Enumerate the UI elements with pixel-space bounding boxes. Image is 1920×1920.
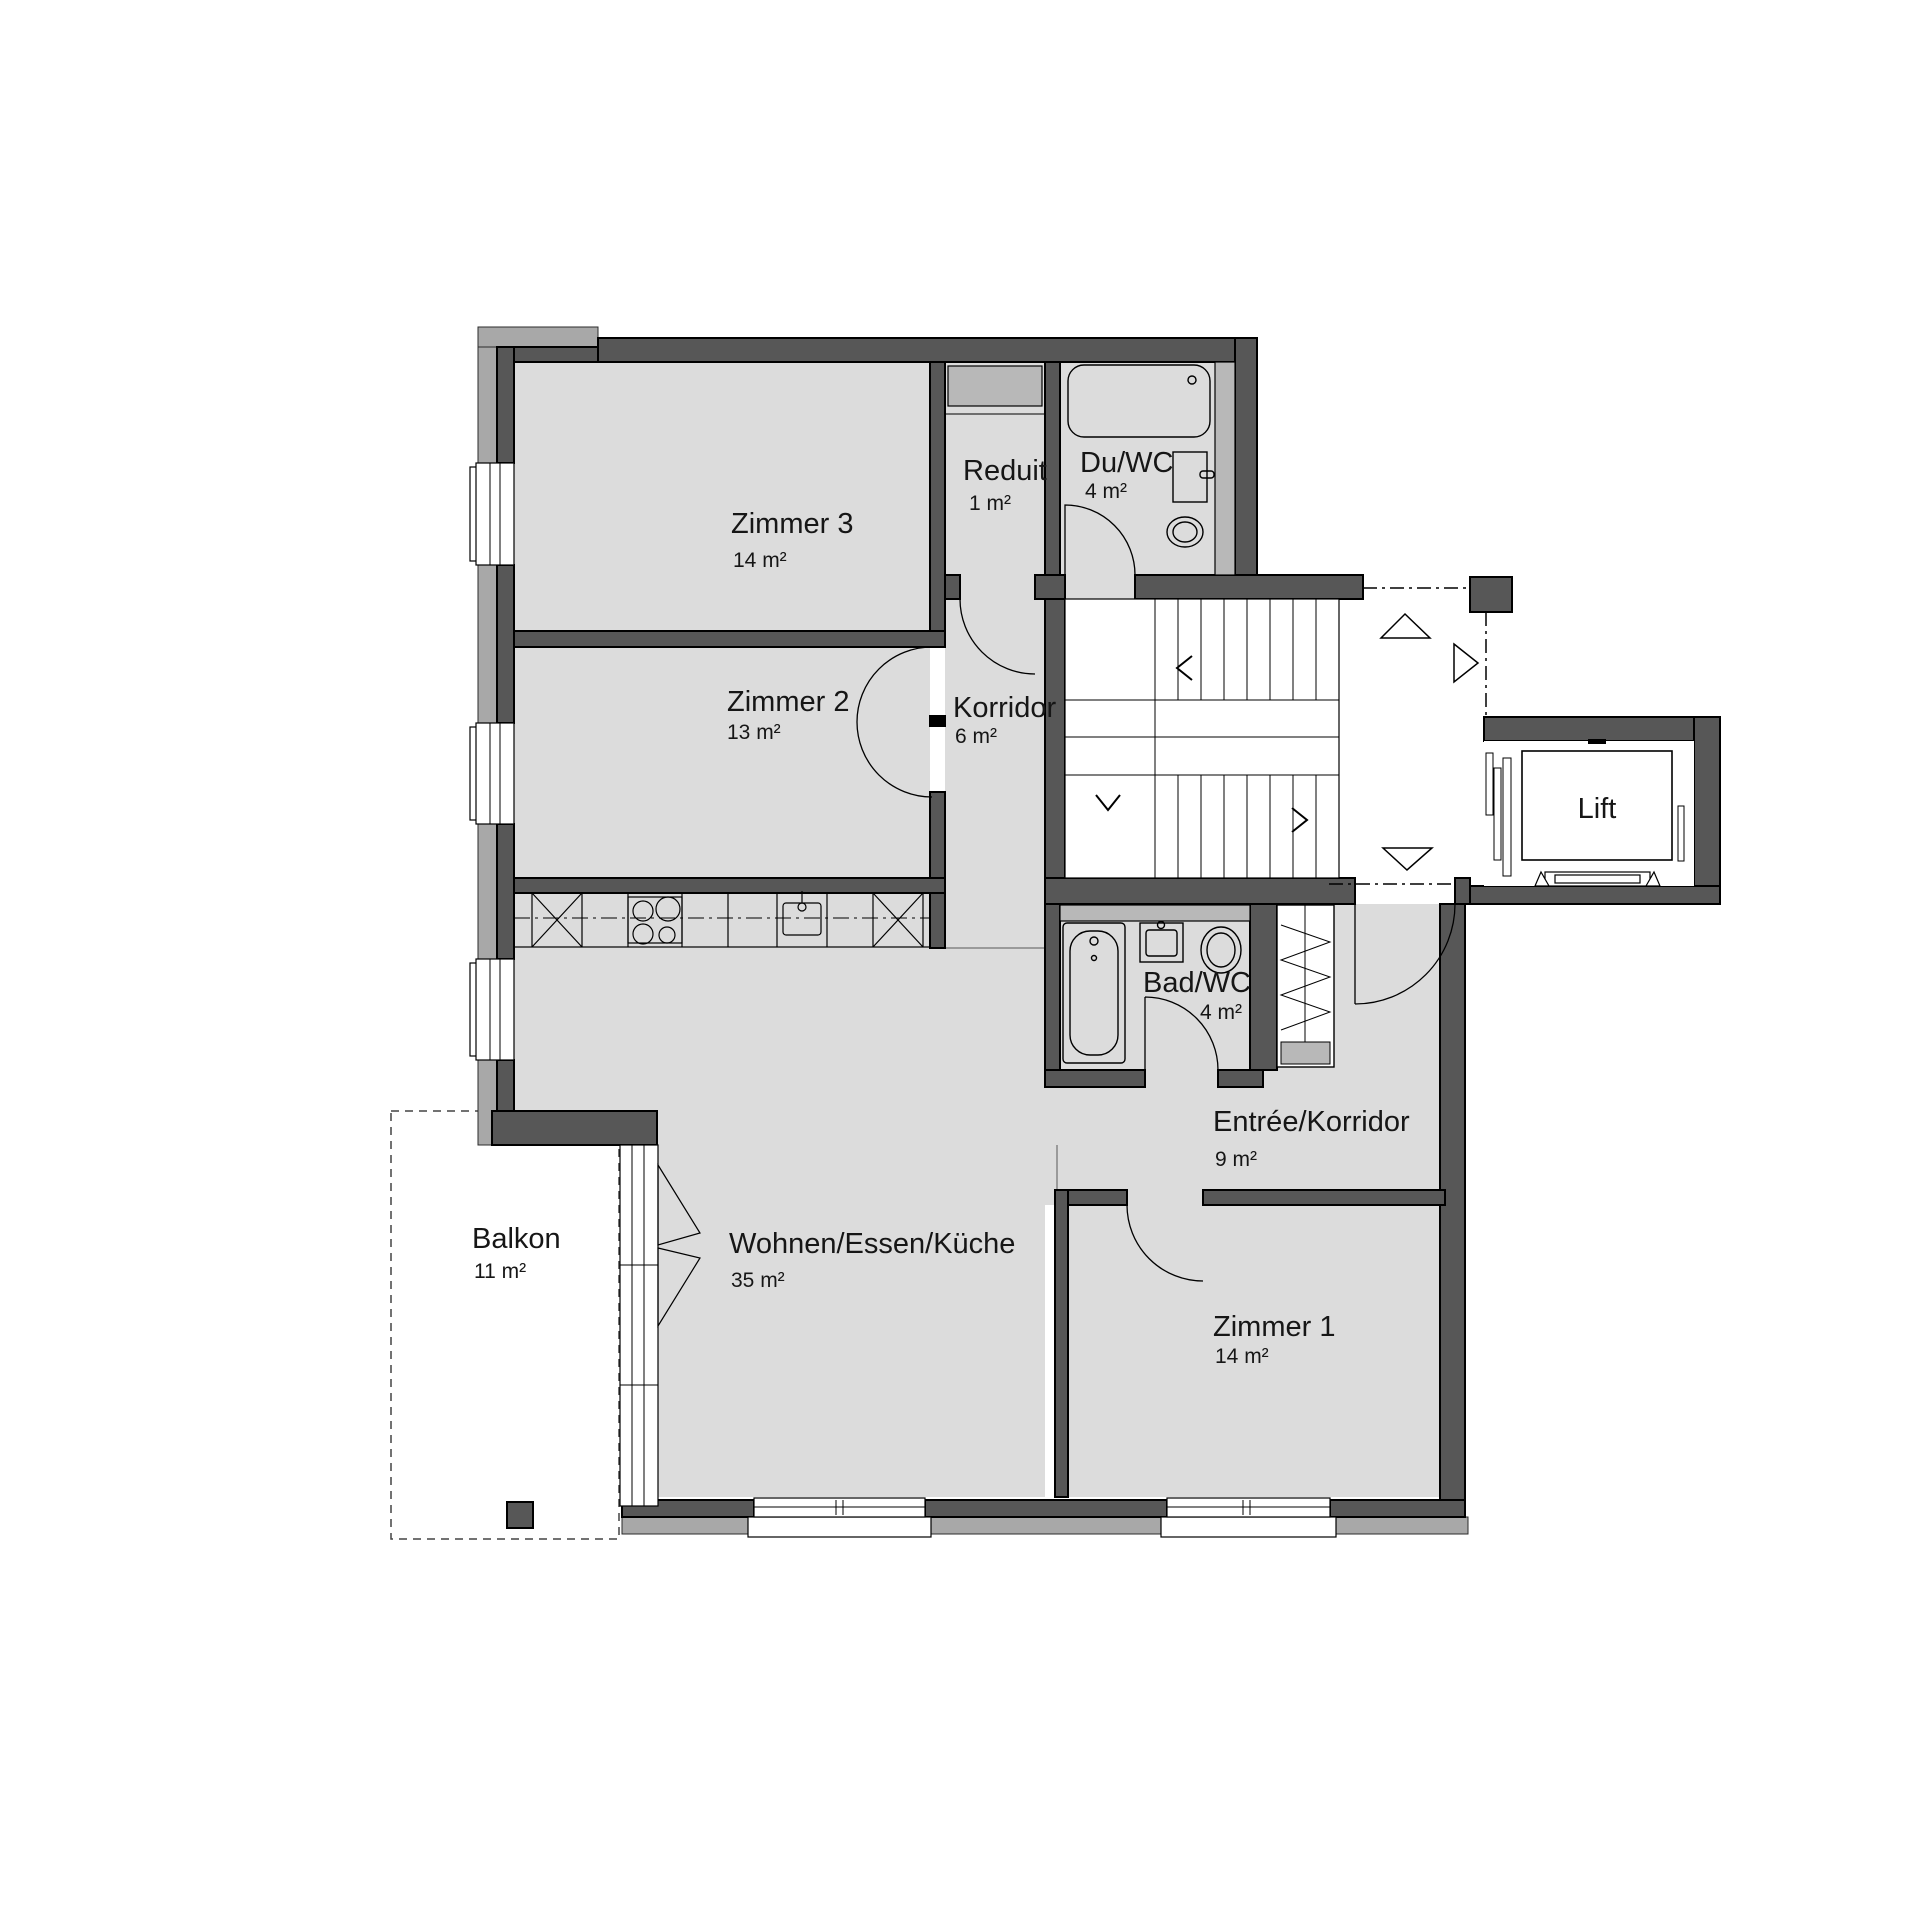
window-living-west (476, 959, 514, 1060)
wall-stair-bottom-right (1455, 878, 1470, 904)
room-area-reduit: 1 m² (969, 492, 1011, 515)
wall-entree-zimmer1-right (1203, 1190, 1445, 1205)
room-area-bad-wc: 4 m² (1200, 1001, 1242, 1024)
balcony-outline (391, 1111, 619, 1539)
wall-stair-top (1135, 575, 1363, 599)
wall-badwc-wardrobe (1250, 904, 1277, 1070)
room-label-balkon: Balkon (472, 1223, 561, 1255)
room-area-korridor: 6 m² (955, 725, 997, 748)
room-label-entree: Entrée/Korridor (1213, 1106, 1410, 1138)
reduit-shelf (948, 366, 1042, 406)
room-label-zimmer1: Zimmer 1 (1213, 1311, 1335, 1343)
wall-top (598, 338, 1257, 362)
room-label-zimmer3: Zimmer 3 (731, 508, 853, 540)
room-area-entree: 9 m² (1215, 1148, 1257, 1171)
room-label-bad-wc: Bad/WC (1143, 967, 1251, 999)
wall-lift-top (1484, 717, 1720, 741)
wall-reduit-duwc (1045, 362, 1060, 575)
stairwell (1065, 599, 1339, 878)
balcony (391, 1111, 619, 1539)
window-sill-living-south (748, 1517, 931, 1537)
wall-reduit-bottom-right (1035, 575, 1065, 599)
room-label-reduit: Reduit (963, 455, 1047, 487)
stairwell-box (1065, 599, 1339, 878)
room-area-zimmer3: 14 m² (733, 549, 787, 572)
window-zimmer2 (476, 723, 514, 824)
wall-left-3 (497, 824, 514, 959)
wall-living-zimmer1 (1055, 1190, 1068, 1497)
wall-door-jamb (930, 716, 945, 726)
wall-badwc-left (1045, 904, 1060, 1087)
floor-plan-drawing: Zimmer 3 14 m² Reduit 1 m² Du/WC 4 m² Zi… (0, 0, 1920, 1920)
wall-northeast (1235, 338, 1257, 577)
wall-bottom-3 (1330, 1500, 1465, 1517)
floor-living-lower (658, 1145, 1045, 1497)
wardrobe-base (1281, 1042, 1330, 1064)
wall-stair-left (1045, 599, 1065, 878)
wall-stair-bottom (1045, 878, 1355, 904)
room-label-du-wc: Du/WC (1080, 447, 1173, 479)
room-label-lift: Lift (1578, 793, 1617, 825)
wall-reduit-bottom-left (945, 575, 960, 599)
room-label-zimmer2: Zimmer 2 (727, 686, 849, 718)
floor-entree-upper (1334, 904, 1445, 1087)
lift-counterweight (1535, 872, 1660, 886)
duct-du-wc (1215, 362, 1235, 575)
wall-left-2 (497, 565, 514, 723)
floor-zimmer2 (514, 647, 930, 878)
room-label-korridor: Korridor (953, 692, 1056, 724)
wall-left-1 (497, 347, 514, 463)
wall-east (1440, 904, 1465, 1517)
room-area-balkon: 11 m² (474, 1260, 526, 1283)
room-area-zimmer1: 14 m² (1215, 1345, 1269, 1368)
floor-korridor (945, 575, 1045, 948)
wall-korridor-living (930, 893, 945, 948)
duct-bad-wc (1060, 905, 1250, 921)
wall-badwc-bottom-left (1045, 1070, 1145, 1087)
room-label-wohnen: Wohnen/Essen/Küche (729, 1228, 1015, 1260)
floor-living-upper (514, 893, 1045, 1145)
room-area-zimmer2: 13 m² (727, 721, 781, 744)
floor-du-wc (1060, 362, 1215, 599)
floor-zimmer3 (514, 362, 930, 631)
room-area-wohnen: 35 m² (731, 1269, 785, 1292)
wall-balcony-jog (492, 1111, 657, 1145)
floor-plan-page: Zimmer 3 14 m² Reduit 1 m² Du/WC 4 m² Zi… (0, 0, 1920, 1920)
balcony-door-glazing (620, 1145, 658, 1506)
wall-corner-block (1470, 577, 1512, 612)
wall-lift-right (1694, 717, 1720, 904)
wall-kitchen (514, 878, 945, 893)
wall-lift-bottom (1470, 886, 1720, 904)
wall-badwc-bottom-right (1218, 1070, 1263, 1087)
wardrobe (1277, 905, 1334, 1067)
window-zimmer3 (476, 463, 514, 565)
wall-zimmer3-zimmer2 (514, 631, 945, 647)
room-area-du-wc: 4 m² (1085, 480, 1127, 503)
band-top-left (478, 327, 598, 347)
balcony-column (507, 1502, 533, 1528)
wall-zimmer3-reduit (930, 362, 945, 647)
window-sill-zimmer1 (1161, 1517, 1336, 1537)
lift-guide-top (1588, 739, 1606, 744)
wall-bottom-2 (925, 1500, 1167, 1517)
